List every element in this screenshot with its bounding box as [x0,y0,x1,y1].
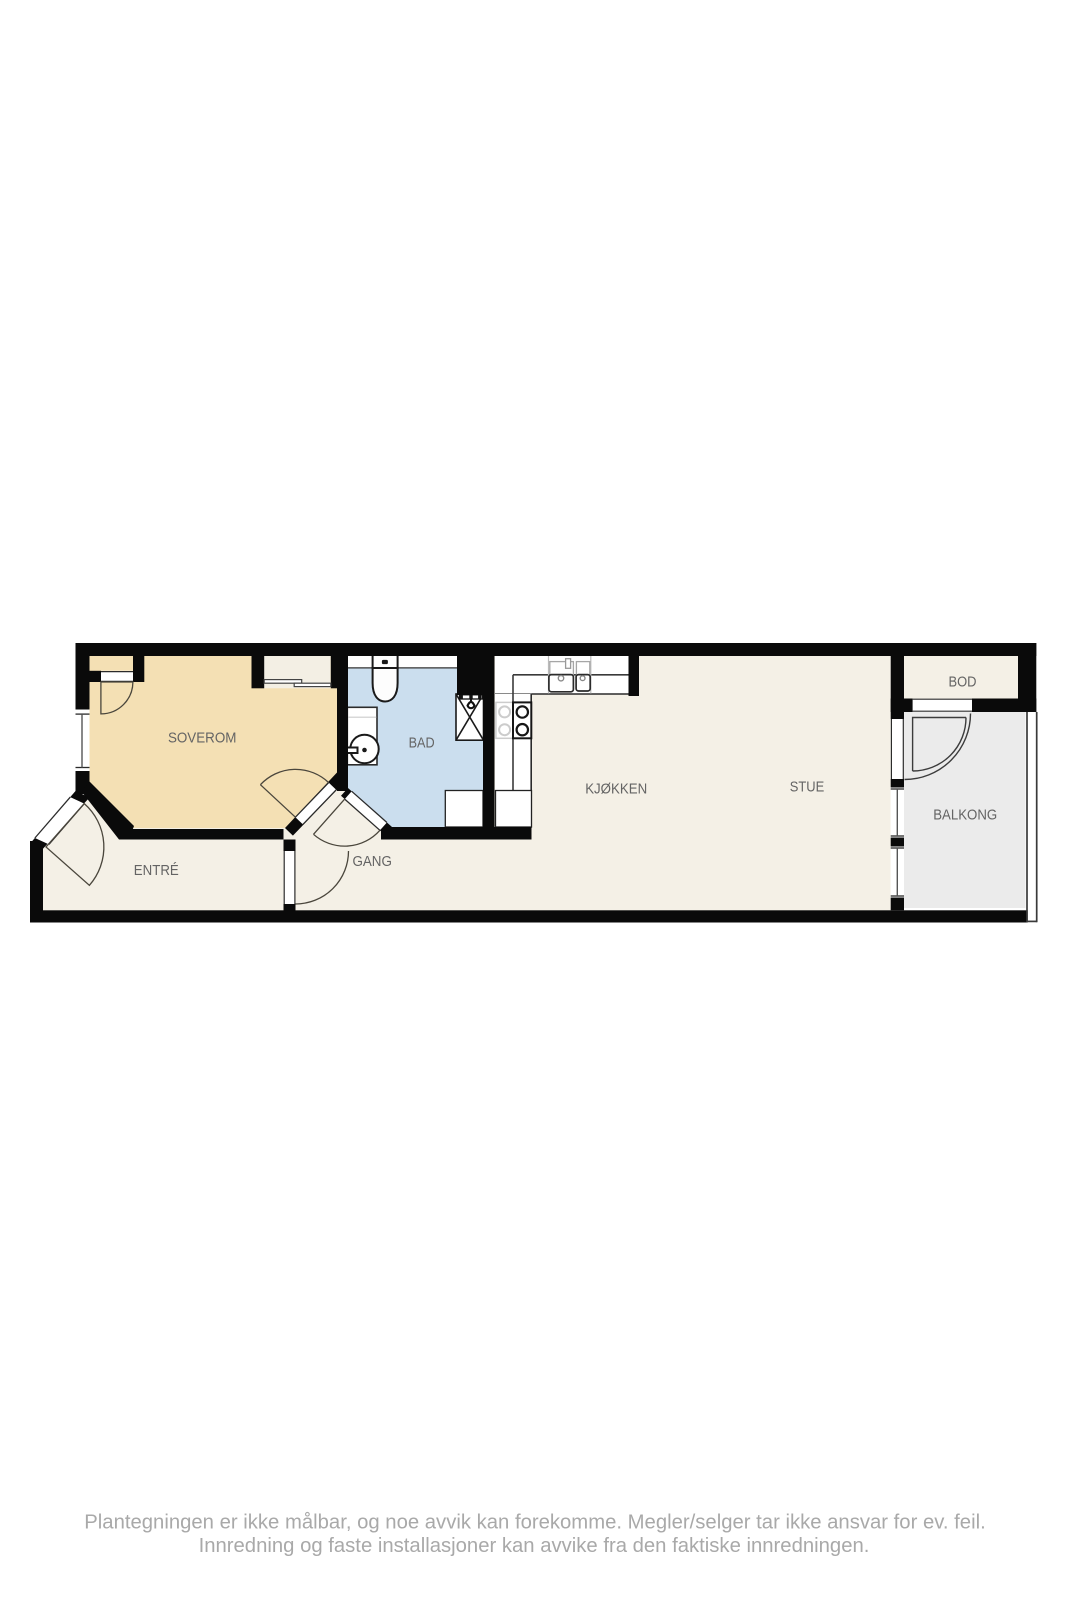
svg-text:BAD: BAD [409,734,435,751]
svg-text:Plantegningen er ikke målbar,: Plantegningen er ikke målbar, og noe avv… [84,1512,985,1534]
svg-text:STUE: STUE [790,778,825,795]
svg-text:BOD: BOD [949,674,977,691]
svg-text:ENTRÉ: ENTRÉ [134,862,179,879]
svg-text:Innredning og faste installasj: Innredning og faste installasjoner kan a… [199,1535,870,1557]
svg-text:SOVEROM: SOVEROM [168,729,237,746]
svg-text:GANG: GANG [352,853,392,870]
svg-text:KJØKKEN: KJØKKEN [585,781,647,798]
svg-text:BALKONG: BALKONG [933,807,997,824]
